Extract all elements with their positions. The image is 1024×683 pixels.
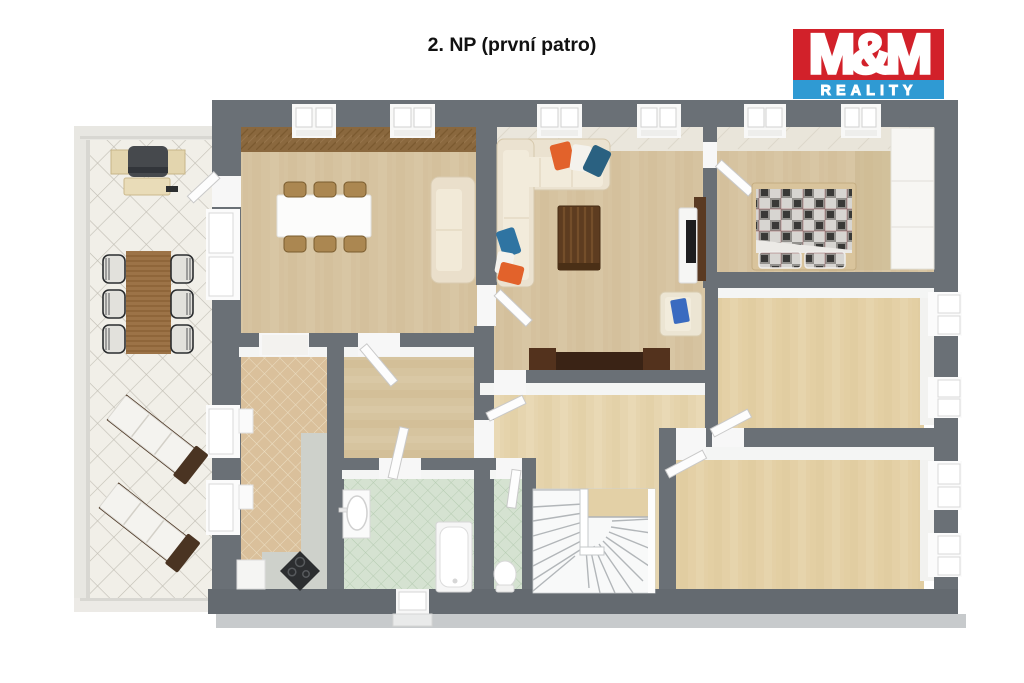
svg-text:2. NP (první patro): 2. NP (první patro) — [428, 34, 597, 56]
svg-text:REALITY: REALITY — [820, 83, 917, 99]
svg-text:M&M: M&M — [809, 22, 929, 85]
